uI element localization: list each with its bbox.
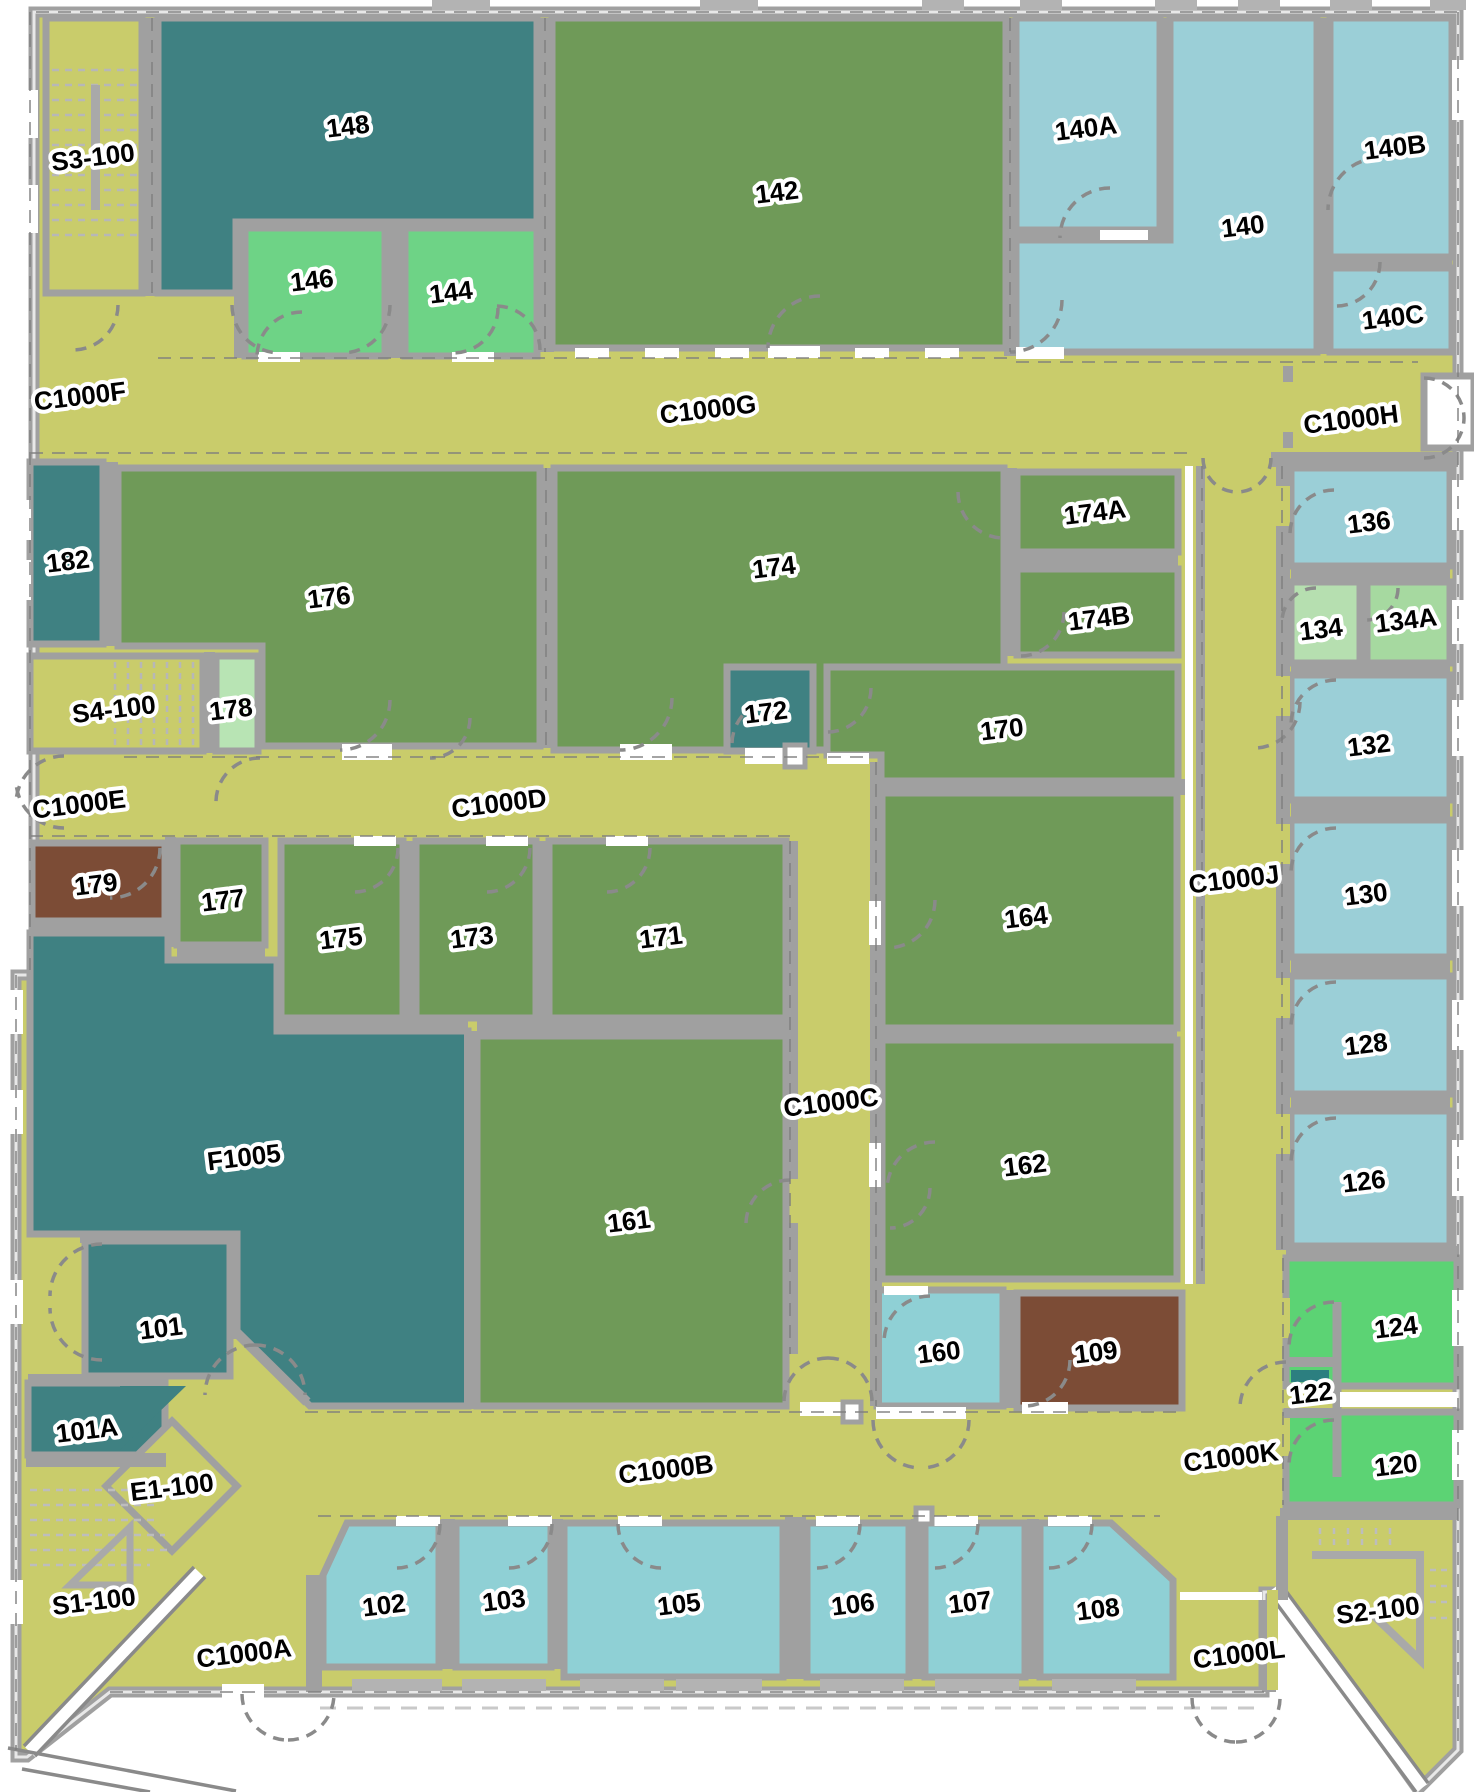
- svg-text:103: 103: [481, 1583, 528, 1618]
- svg-text:179: 179: [73, 867, 120, 902]
- svg-text:177: 177: [200, 883, 247, 918]
- svg-text:144: 144: [428, 274, 475, 309]
- svg-text:106: 106: [830, 1587, 877, 1622]
- svg-text:171: 171: [638, 920, 685, 955]
- svg-text:164: 164: [1003, 899, 1050, 934]
- svg-text:176: 176: [306, 580, 353, 615]
- svg-text:148: 148: [325, 109, 372, 144]
- svg-text:108: 108: [1075, 1592, 1122, 1627]
- svg-text:134: 134: [1298, 611, 1345, 646]
- svg-text:128: 128: [1343, 1027, 1390, 1062]
- svg-text:160: 160: [916, 1335, 963, 1370]
- svg-text:170: 170: [979, 712, 1026, 747]
- svg-text:142: 142: [754, 175, 801, 210]
- svg-text:132: 132: [1346, 728, 1393, 763]
- svg-text:162: 162: [1002, 1148, 1049, 1183]
- svg-text:105: 105: [656, 1587, 703, 1622]
- svg-text:130: 130: [1343, 877, 1390, 912]
- svg-text:122: 122: [1288, 1376, 1335, 1411]
- svg-text:124: 124: [1373, 1309, 1420, 1344]
- svg-text:175: 175: [318, 921, 365, 956]
- svg-text:173: 173: [449, 920, 496, 955]
- svg-text:161: 161: [606, 1204, 653, 1239]
- svg-text:140: 140: [1220, 209, 1267, 244]
- svg-text:102: 102: [361, 1588, 408, 1623]
- svg-text:107: 107: [947, 1585, 994, 1620]
- svg-text:146: 146: [289, 263, 336, 298]
- svg-text:101: 101: [138, 1311, 185, 1346]
- svg-text:136: 136: [1346, 505, 1393, 540]
- svg-text:172: 172: [743, 695, 790, 730]
- svg-text:178: 178: [208, 692, 255, 727]
- svg-text:109: 109: [1073, 1335, 1120, 1370]
- svg-text:174: 174: [751, 549, 798, 584]
- svg-text:182: 182: [45, 544, 92, 579]
- svg-text:120: 120: [1373, 1448, 1420, 1483]
- svg-text:126: 126: [1341, 1164, 1388, 1199]
